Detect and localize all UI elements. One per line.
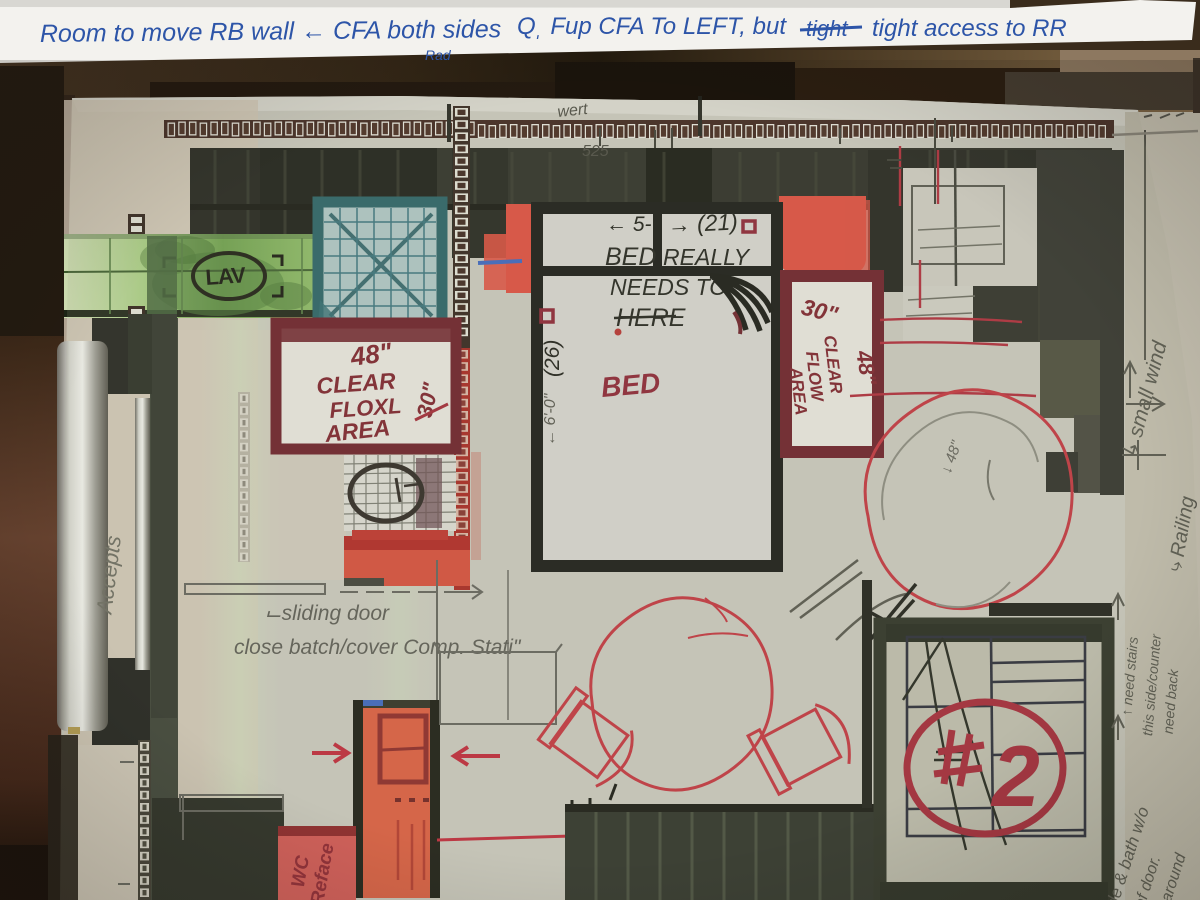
svg-text:Room to move RB wall ← CFA bot: Room to move RB wall ← CFA both sides: [40, 15, 502, 48]
svg-text:tight access to RR: tight access to RR: [872, 15, 1067, 42]
svg-text:Qˌ Fup CFA To LEFT, but: Qˌ Fup CFA To LEFT, but: [517, 13, 787, 40]
